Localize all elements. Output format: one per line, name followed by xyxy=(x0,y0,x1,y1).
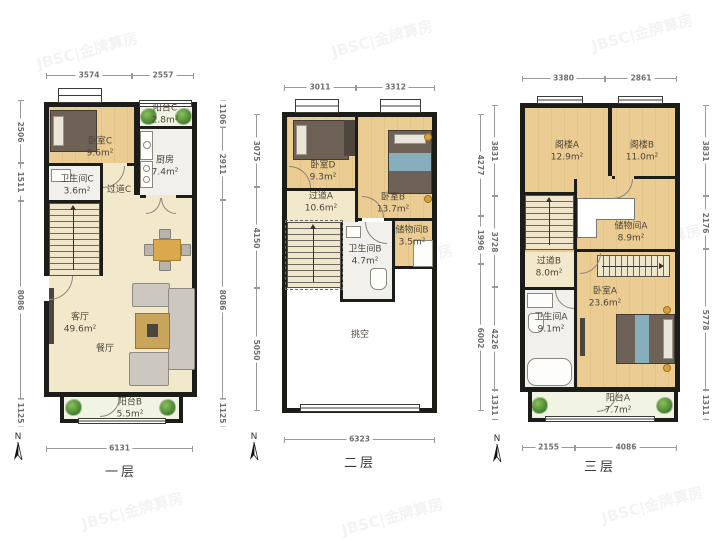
room-label-atticA: 阁楼A12.9m² xyxy=(551,140,583,163)
room-label-balconyA: 阳台A7.7m² xyxy=(605,393,632,416)
room-label-bedroomD: 卧室D9.3m² xyxy=(310,160,337,183)
wall xyxy=(634,176,675,179)
watermark: JBSC|金牌算房 xyxy=(589,9,695,56)
dim-segment: 6002 xyxy=(476,264,485,411)
burner xyxy=(143,165,150,172)
room-label-bathroomC: 卫生间C3.6m² xyxy=(60,174,93,197)
dim-segment: 3075 xyxy=(252,114,261,187)
staircase xyxy=(49,203,100,276)
dim-segment: 3380 xyxy=(522,74,605,83)
coffee-table xyxy=(135,313,170,349)
dim-segment: 1511 xyxy=(16,163,25,201)
burner xyxy=(143,176,150,183)
room-label-bedroomC: 卧室C9.6m² xyxy=(87,136,114,159)
blanket xyxy=(389,153,431,171)
room-label-balconyC: 阳台C2.8m² xyxy=(152,103,179,126)
floor3-name: 三层 xyxy=(584,456,616,475)
pillow xyxy=(394,134,426,144)
watermark: JBSC|金牌算房 xyxy=(339,493,445,540)
blanket xyxy=(635,315,649,363)
plant-icon xyxy=(160,400,175,415)
bed xyxy=(616,314,675,364)
toilet xyxy=(370,268,387,290)
dim-segment: 5050 xyxy=(252,288,261,411)
dim-segment: 1125 xyxy=(218,399,227,427)
tv-stand xyxy=(580,318,585,356)
wardrobe xyxy=(344,120,355,156)
room-label-void: 挑空 xyxy=(351,330,369,342)
sofa xyxy=(132,283,170,307)
svg-text:N: N xyxy=(15,432,22,442)
plant-icon xyxy=(66,400,81,415)
room-label-balconyB: 阳台B5.5m² xyxy=(117,397,144,420)
compass-icon: N xyxy=(8,430,28,464)
sofa xyxy=(129,352,169,386)
dim-segment: 2557 xyxy=(132,71,194,80)
dim-segment: 3728 xyxy=(490,196,499,287)
chair xyxy=(144,244,154,256)
room-label-storageB: 储物间B3.5m² xyxy=(395,225,428,248)
room-label-bedroomB: 卧室B13.7m² xyxy=(377,192,409,215)
room-label-dining: 餐厅 xyxy=(96,344,114,356)
dim-segment: 2861 xyxy=(605,74,677,83)
wall xyxy=(355,117,358,222)
dim-segment: 2911 xyxy=(218,127,227,200)
sink-basin xyxy=(143,141,151,149)
stair-direction-line xyxy=(602,266,658,267)
sofa-chaise xyxy=(168,288,195,370)
wall xyxy=(127,163,134,166)
wall xyxy=(176,195,192,198)
dim-segment: 2506 xyxy=(16,100,25,163)
bathroom-sink xyxy=(527,293,553,308)
room-label-kitchen: 厨房7.4m² xyxy=(152,155,179,178)
bathtub xyxy=(527,358,572,386)
wall xyxy=(608,108,612,176)
plant-icon xyxy=(657,398,672,413)
floor1-name: 一层 xyxy=(105,461,137,480)
storage-niche xyxy=(577,198,635,220)
dim-segment: 4086 xyxy=(575,443,677,452)
watermark: JBSC|金牌算房 xyxy=(79,487,185,534)
bedside-lamp xyxy=(663,364,671,372)
dim-segment: 4150 xyxy=(252,187,261,288)
bay-window xyxy=(58,88,102,103)
table-decor xyxy=(147,324,158,337)
chair xyxy=(159,261,171,271)
watermark: JBSC|金牌算房 xyxy=(599,481,705,528)
floorplan-canvas: JBSC|金牌算房 JBSC|金牌算房 JBSC|金牌算房 JBSC|金牌算房 … xyxy=(0,0,720,540)
room-label-hallwayA: 过道A10.6m² xyxy=(305,191,337,214)
stair-void-outline xyxy=(285,220,343,290)
stair-arrow-icon xyxy=(546,197,552,202)
bedside-lamp xyxy=(424,133,432,141)
bay-window xyxy=(380,99,421,113)
pillow xyxy=(663,319,673,359)
storage-niche xyxy=(577,219,597,238)
stair-arrow-icon xyxy=(70,205,76,210)
svg-text:N: N xyxy=(494,434,501,444)
window xyxy=(618,96,663,104)
room-label-hallwayB: 过道B8.0m² xyxy=(536,256,563,279)
room-label-bathroomB: 卫生间B4.7m² xyxy=(348,244,381,267)
entry-opening xyxy=(42,276,49,301)
balconyA-window xyxy=(545,416,655,422)
watermark: JBSC|金牌算房 xyxy=(34,27,140,74)
dim-segment: 1311 xyxy=(490,390,499,420)
wall xyxy=(574,179,577,387)
stair-direction-line xyxy=(73,210,74,270)
bay-window xyxy=(295,99,339,113)
wall xyxy=(49,163,103,166)
dim-segment: 4277 xyxy=(476,114,485,216)
stair-direction-line xyxy=(549,200,550,245)
dim-segment: 4226 xyxy=(490,287,499,390)
stair-arrow-icon xyxy=(659,263,664,269)
dim-segment: 8086 xyxy=(218,200,227,399)
compass-icon: N xyxy=(244,430,264,464)
bathroom-sink xyxy=(346,226,361,238)
watermark: JBSC|金牌算房 xyxy=(329,15,435,62)
room-label-living: 客厅49.6m² xyxy=(64,312,96,335)
room-label-bathroomA: 卫生间A9.1m² xyxy=(534,312,567,335)
plant-icon xyxy=(532,398,547,413)
floor2-name: 二层 xyxy=(344,452,376,471)
dim-segment: 6131 xyxy=(46,444,193,453)
room-label-hallwayC: 过道C xyxy=(107,185,131,197)
dim-segment: 3831 xyxy=(490,105,499,196)
dim-segment: 1106 xyxy=(218,100,227,127)
room-label-storageA: 储物间A8.9m² xyxy=(614,221,647,244)
dim-segment: 3574 xyxy=(46,71,132,80)
wall xyxy=(358,218,362,221)
window xyxy=(300,404,420,412)
svg-text:N: N xyxy=(251,432,258,442)
room-label-bedroomA: 卧室A23.6m² xyxy=(589,286,621,309)
bedside-lamp xyxy=(663,306,671,314)
window xyxy=(537,96,583,104)
dim-segment: 2155 xyxy=(522,443,575,452)
chair xyxy=(159,229,171,239)
dim-segment: 1125 xyxy=(16,399,25,427)
dim-segment: 2176 xyxy=(701,196,710,249)
dim-segment: 8086 xyxy=(16,201,25,399)
dim-segment: 1996 xyxy=(476,216,485,264)
dim-segment: 3312 xyxy=(356,83,435,92)
dim-segment: 3831 xyxy=(701,105,710,196)
bedside-lamp xyxy=(424,195,432,203)
room-label-atticB: 阁楼B11.0m² xyxy=(626,140,658,163)
dim-segment: 6323 xyxy=(284,435,435,444)
chair xyxy=(181,244,191,256)
wall xyxy=(577,249,675,252)
dim-segment: 3011 xyxy=(284,83,356,92)
pillow xyxy=(53,116,64,146)
dining-table xyxy=(153,239,181,261)
dim-segment: 1311 xyxy=(701,390,710,420)
wall xyxy=(343,299,392,302)
bed xyxy=(293,120,349,160)
pillow xyxy=(296,125,307,155)
compass-icon: N xyxy=(487,432,507,466)
dim-segment: 5778 xyxy=(701,249,710,390)
